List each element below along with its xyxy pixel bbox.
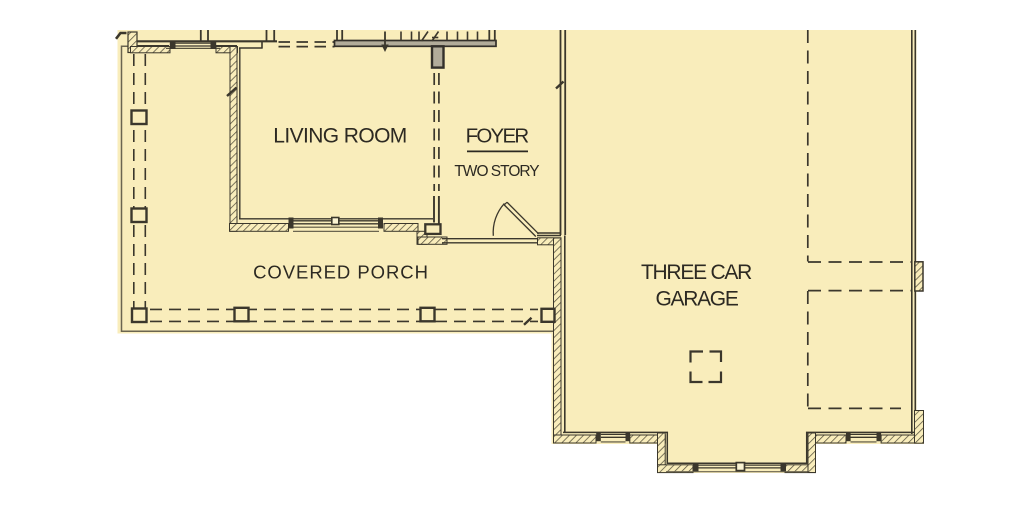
svg-text:LIVING ROOM: LIVING ROOM	[273, 125, 406, 148]
svg-text:COVERED PORCH: COVERED PORCH	[253, 262, 429, 283]
svg-text:FOYER: FOYER	[466, 125, 529, 148]
svg-text:THREE CAR: THREE CAR	[641, 261, 752, 284]
svg-text:GARAGE: GARAGE	[655, 288, 738, 311]
svg-text:TWO STORY: TWO STORY	[454, 163, 539, 180]
